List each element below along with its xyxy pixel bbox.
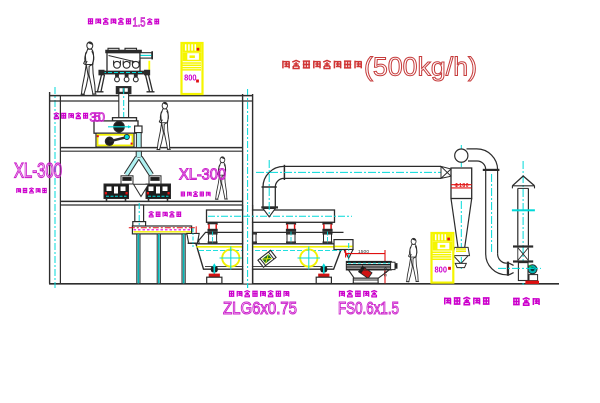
svg-text:Φ180: Φ180	[455, 183, 469, 189]
svg-text:XL-300: XL-300	[179, 167, 226, 184]
svg-text:550: 550	[383, 267, 388, 276]
svg-text:1.5: 1.5	[133, 16, 146, 30]
svg-text:ZLG6x0.75: ZLG6x0.75	[223, 298, 297, 318]
svg-text:350: 350	[90, 111, 106, 125]
svg-text:800: 800	[435, 265, 448, 275]
svg-text:800: 800	[184, 73, 197, 83]
svg-text:(500kg/h): (500kg/h)	[364, 52, 477, 82]
svg-text:XL-300: XL-300	[14, 160, 62, 183]
svg-text:FS0.6x1.5: FS0.6x1.5	[338, 298, 399, 318]
svg-text:1500: 1500	[358, 249, 369, 255]
